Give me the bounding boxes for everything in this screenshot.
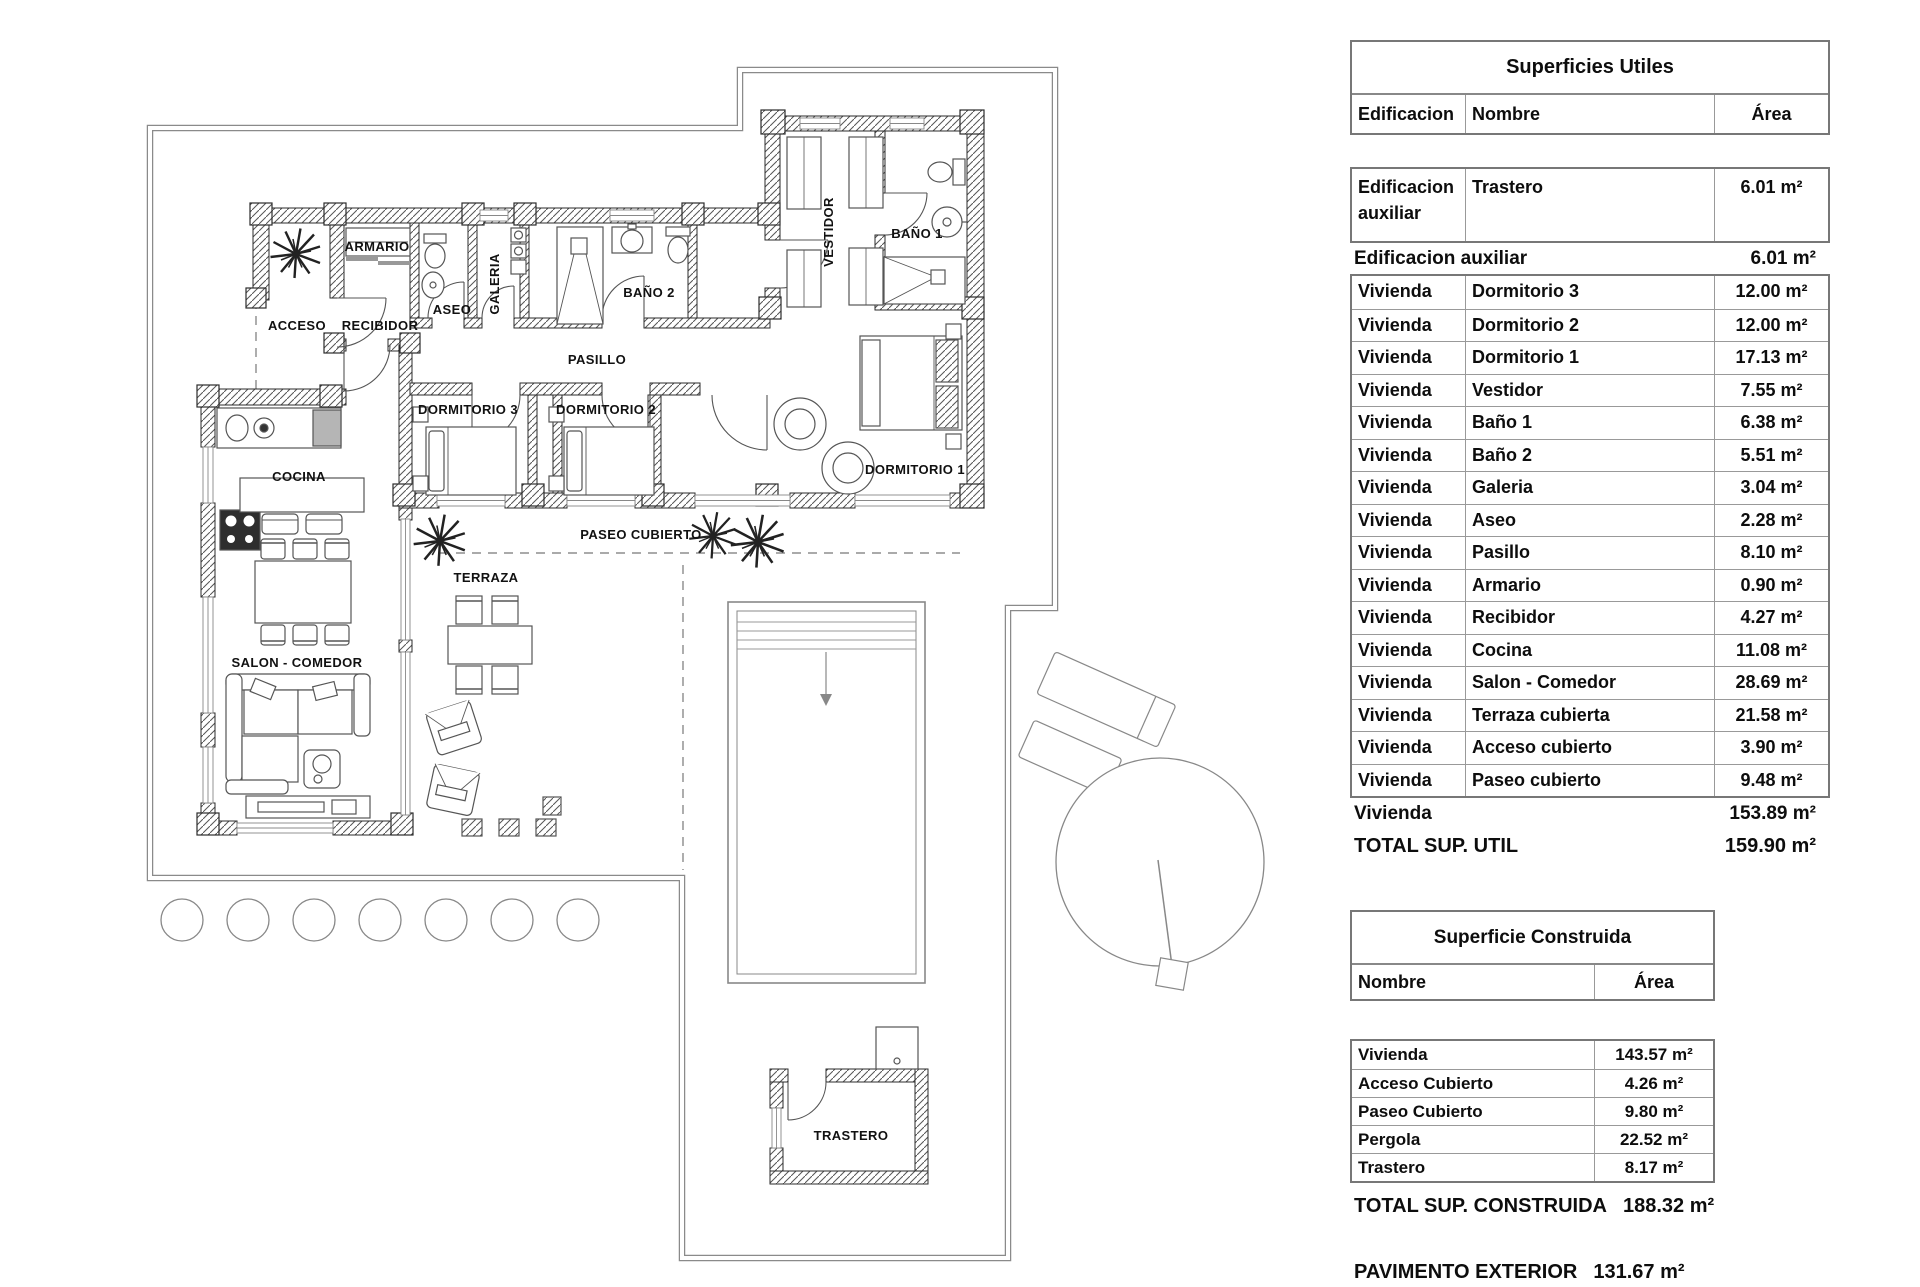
room-label: RECIBIDOR — [342, 318, 419, 333]
table-row: ViviendaBaño 16.38 m² — [1352, 406, 1828, 439]
table-cell: Vivienda — [1352, 699, 1466, 732]
room-label: VESTIDOR — [821, 197, 836, 267]
table-cell: 4.27 m² — [1715, 601, 1828, 634]
table-cell: Cocina — [1466, 634, 1715, 667]
floor-plan: ARMARIOACCESORECIBIDORASEOGALERIABAÑO 2P… — [0, 0, 1345, 1280]
table-cell: Vivienda — [1352, 569, 1466, 602]
room-label: BAÑO 1 — [891, 226, 943, 241]
table-cell: Paseo cubierto — [1466, 764, 1715, 797]
table-cell: Salon - Comedor — [1466, 666, 1715, 699]
table-cell: Baño 2 — [1466, 439, 1715, 472]
table-row: ViviendaBaño 25.51 m² — [1352, 439, 1828, 472]
room-label: DORMITORIO 3 — [418, 402, 518, 417]
table-cell: 8.10 m² — [1715, 536, 1828, 569]
table-cell: Vestidor — [1466, 374, 1715, 407]
table-cell: 28.69 m² — [1715, 666, 1828, 699]
cell-area: 6.01 m² — [1715, 169, 1828, 241]
table-cell: Vivienda — [1352, 341, 1466, 374]
table-row: ViviendaDormitorio 212.00 m² — [1352, 309, 1828, 342]
subtotal-edificacion-auxiliar: Edificacion auxiliar 6.01 m² — [1350, 243, 1830, 274]
col-header-area: Área — [1715, 95, 1828, 133]
construida-rows-box: Vivienda143.57 m²Acceso Cubierto4.26 m²P… — [1350, 1039, 1715, 1183]
table-cell: Vivienda — [1352, 406, 1466, 439]
room-label: PASEO CUBIERTO — [580, 527, 701, 542]
col-header-nombre: Nombre — [1466, 95, 1715, 133]
table-cell: Dormitorio 2 — [1466, 309, 1715, 342]
utiles-aux-row-box: Edificacion auxiliar Trastero 6.01 m² — [1350, 167, 1830, 243]
parasol-icon — [1056, 758, 1264, 966]
table-cell: 2.28 m² — [1715, 504, 1828, 537]
table-row: ViviendaCocina11.08 m² — [1352, 634, 1828, 667]
superficie-construida-table: Superficie Construida Nombre Área Vivien… — [1350, 910, 1715, 1287]
table-row: ViviendaDormitorio 312.00 m² — [1352, 276, 1828, 309]
table-cell: 8.17 m² — [1595, 1153, 1713, 1181]
table-row: ViviendaDormitorio 117.13 m² — [1352, 341, 1828, 374]
table-cell: 12.00 m² — [1715, 276, 1828, 309]
table-cell: Baño 1 — [1466, 406, 1715, 439]
table-cell: Pergola — [1352, 1125, 1595, 1153]
table-cell: Vivienda — [1352, 1041, 1595, 1069]
table-cell: 7.55 m² — [1715, 374, 1828, 407]
table-cell: Vivienda — [1352, 309, 1466, 342]
table-cell: Vivienda — [1352, 731, 1466, 764]
table-cell: Vivienda — [1352, 764, 1466, 797]
table-row: ViviendaAseo2.28 m² — [1352, 504, 1828, 537]
table-cell: Vivienda — [1352, 601, 1466, 634]
table-cell: Recibidor — [1466, 601, 1715, 634]
table-cell: Pasillo — [1466, 536, 1715, 569]
table-row: Vivienda143.57 m² — [1352, 1041, 1713, 1069]
table-row: ViviendaRecibidor4.27 m² — [1352, 601, 1828, 634]
table-cell: Vivienda — [1352, 504, 1466, 537]
construida-header-box: Superficie Construida Nombre Área — [1350, 910, 1715, 1001]
room-label: TERRAZA — [454, 570, 519, 585]
table-cell: Dormitorio 1 — [1466, 341, 1715, 374]
table-cell: 12.00 m² — [1715, 309, 1828, 342]
room-label: ASEO — [433, 302, 471, 317]
total-sup-util: TOTAL SUP. UTIL 159.90 m² — [1350, 829, 1830, 863]
table-cell: 6.38 m² — [1715, 406, 1828, 439]
room-label: DORMITORIO 1 — [865, 462, 965, 477]
table-row: ViviendaTerraza cubierta21.58 m² — [1352, 699, 1828, 732]
utiles-rows-box: ViviendaDormitorio 312.00 m²ViviendaDorm… — [1350, 274, 1830, 798]
table-row: Acceso Cubierto4.26 m² — [1352, 1069, 1713, 1097]
room-label: SALON - COMEDOR — [232, 655, 363, 670]
superficies-utiles-table: Superficies Utiles Edificacion Nombre Ár… — [1350, 40, 1830, 863]
room-label: PASILLO — [568, 352, 626, 367]
table-cell: 9.80 m² — [1595, 1097, 1713, 1125]
utiles-column-headers: Edificacion Nombre Área — [1352, 95, 1828, 133]
utiles-header-box: Superficies Utiles Edificacion Nombre Ár… — [1350, 40, 1830, 135]
pavimento-exterior: PAVIMENTO EXTERIOR 131.67 m² — [1350, 1257, 1715, 1287]
table-cell: 17.13 m² — [1715, 341, 1828, 374]
table-cell: 21.58 m² — [1715, 699, 1828, 732]
table-cell: 22.52 m² — [1595, 1125, 1713, 1153]
table-cell: 3.90 m² — [1715, 731, 1828, 764]
room-label: BAÑO 2 — [623, 285, 675, 300]
room-label: ARMARIO — [345, 239, 410, 254]
table-cell: Vivienda — [1352, 634, 1466, 667]
table-row: Edificacion auxiliar Trastero 6.01 m² — [1352, 169, 1828, 241]
table-row: ViviendaVestidor7.55 m² — [1352, 374, 1828, 407]
table-cell: 9.48 m² — [1715, 764, 1828, 797]
table-cell: Aseo — [1466, 504, 1715, 537]
room-label: DORMITORIO 2 — [556, 402, 656, 417]
table-cell: Trastero — [1352, 1153, 1595, 1181]
table-cell: Vivienda — [1352, 439, 1466, 472]
table-cell: Vivienda — [1352, 471, 1466, 504]
cell-nombre: Trastero — [1466, 169, 1715, 241]
construida-title: Superficie Construida — [1352, 912, 1713, 965]
total-sup-construida: TOTAL SUP. CONSTRUIDA 188.32 m² — [1350, 1191, 1715, 1221]
pool — [728, 602, 925, 983]
col-header-nombre: Nombre — [1352, 965, 1595, 999]
col-header-area: Área — [1595, 965, 1713, 999]
parasol-area — [1018, 652, 1264, 991]
table-cell: Armario — [1466, 569, 1715, 602]
table-cell: Galeria — [1466, 471, 1715, 504]
col-header-edificacion: Edificacion — [1352, 95, 1466, 133]
table-row: ViviendaGaleria3.04 m² — [1352, 471, 1828, 504]
room-label: TRASTERO — [814, 1128, 889, 1143]
table-cell: Dormitorio 3 — [1466, 276, 1715, 309]
table-row: ViviendaPasillo8.10 m² — [1352, 536, 1828, 569]
subtotal-vivienda: Vivienda 153.89 m² — [1350, 798, 1830, 829]
table-row: Paseo Cubierto9.80 m² — [1352, 1097, 1713, 1125]
page: { "colors": { "wall_line": "#2b2b2b", "h… — [0, 0, 1920, 1280]
cell-edificacion: Edificacion auxiliar — [1352, 169, 1466, 241]
table-cell: 143.57 m² — [1595, 1041, 1713, 1069]
table-cell: Vivienda — [1352, 276, 1466, 309]
table-cell: Vivienda — [1352, 666, 1466, 699]
bushes — [161, 899, 599, 941]
table-cell: 4.26 m² — [1595, 1069, 1713, 1097]
utiles-title: Superficies Utiles — [1352, 42, 1828, 95]
table-cell: Vivienda — [1352, 536, 1466, 569]
table-cell: Acceso Cubierto — [1352, 1069, 1595, 1097]
table-row: ViviendaAcceso cubierto3.90 m² — [1352, 731, 1828, 764]
table-cell: Terraza cubierta — [1466, 699, 1715, 732]
table-cell: Vivienda — [1352, 374, 1466, 407]
room-label: ACCESO — [268, 318, 326, 333]
table-cell: Acceso cubierto — [1466, 731, 1715, 764]
table-cell: 5.51 m² — [1715, 439, 1828, 472]
table-row: Pergola22.52 m² — [1352, 1125, 1713, 1153]
table-row: ViviendaPaseo cubierto9.48 m² — [1352, 764, 1828, 797]
table-row: Trastero8.17 m² — [1352, 1153, 1713, 1181]
table-row: ViviendaSalon - Comedor28.69 m² — [1352, 666, 1828, 699]
construida-column-headers: Nombre Área — [1352, 965, 1713, 999]
table-row: ViviendaArmario0.90 m² — [1352, 569, 1828, 602]
room-label: GALERIA — [487, 253, 502, 315]
table-cell: Paseo Cubierto — [1352, 1097, 1595, 1125]
table-cell: 0.90 m² — [1715, 569, 1828, 602]
table-cell: 11.08 m² — [1715, 634, 1828, 667]
room-label: COCINA — [272, 469, 326, 484]
table-cell: 3.04 m² — [1715, 471, 1828, 504]
